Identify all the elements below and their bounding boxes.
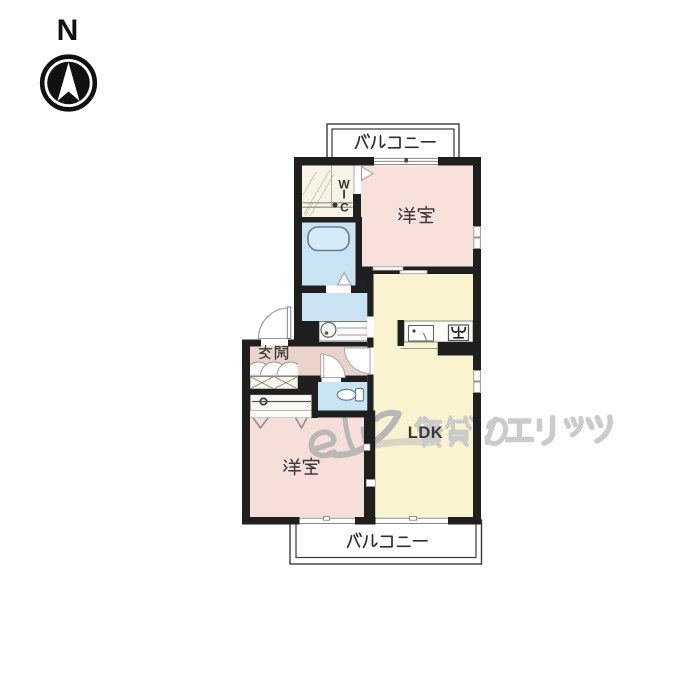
svg-text:LDK: LDK (408, 424, 443, 442)
svg-text:N: N (57, 14, 79, 47)
svg-text:C: C (340, 201, 349, 215)
svg-text:I: I (342, 188, 345, 202)
